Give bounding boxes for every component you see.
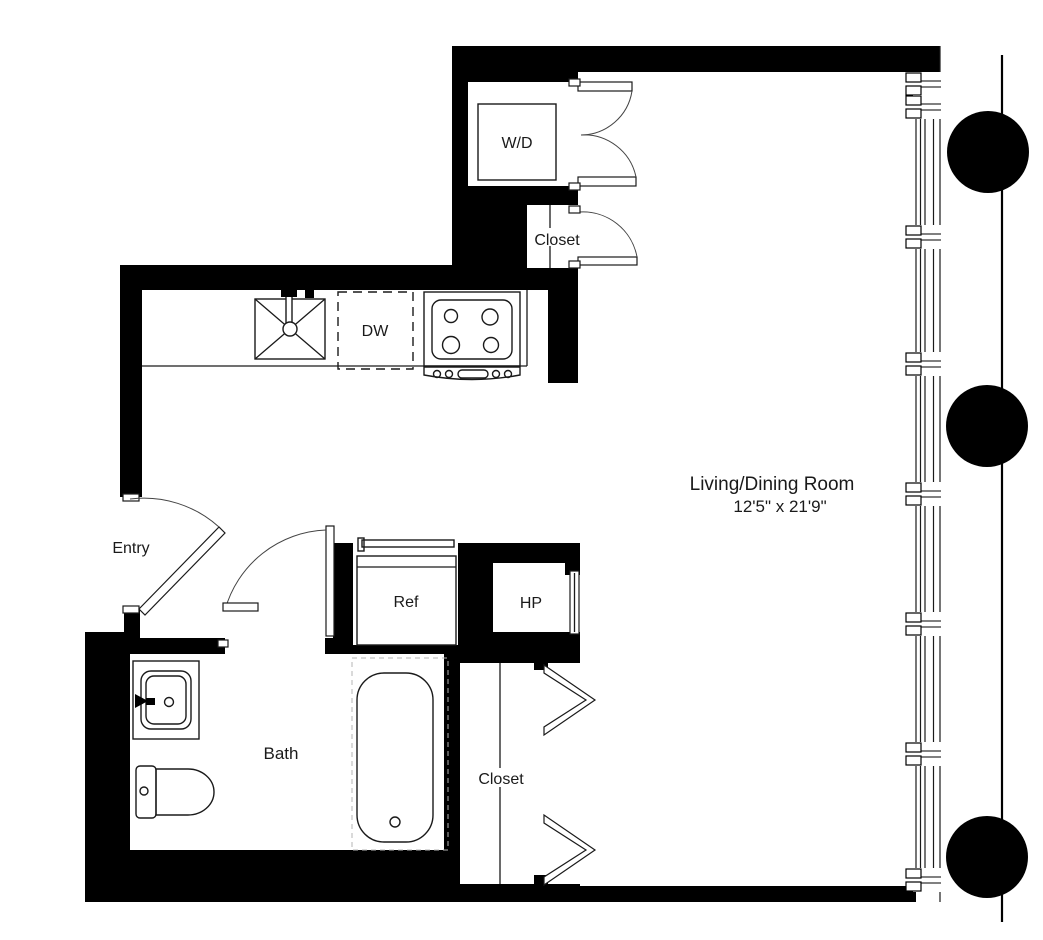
burner bbox=[445, 310, 458, 323]
soap-dispenser bbox=[305, 289, 314, 298]
column-grid bbox=[946, 55, 1029, 922]
kitchen-top-wall bbox=[120, 265, 548, 290]
living-dining-dimensions: 12'5" x 21'9" bbox=[733, 497, 826, 516]
bath-door-jamb bbox=[218, 640, 228, 647]
dishwasher-label: DW bbox=[362, 323, 390, 340]
entry-door-jamb bbox=[123, 494, 139, 501]
window-wall bbox=[906, 46, 942, 902]
faucet-handle bbox=[281, 289, 297, 297]
kitchen-sink bbox=[255, 289, 325, 359]
burner bbox=[482, 309, 498, 325]
stove-display bbox=[458, 370, 488, 378]
column-top bbox=[947, 111, 1029, 193]
window-mullion-joints bbox=[906, 72, 942, 892]
bathroom-door bbox=[218, 526, 334, 647]
kitchen-right-wall bbox=[548, 265, 578, 383]
stove-knob bbox=[493, 371, 500, 378]
bath-top-wall bbox=[85, 638, 225, 654]
refrigerator-label: Ref bbox=[394, 594, 419, 611]
burner bbox=[484, 338, 499, 353]
burner bbox=[443, 337, 460, 354]
floor-plan: DW bbox=[0, 0, 1043, 940]
lower-closet-label: Closet bbox=[478, 771, 524, 788]
floor-plan-drawing: DW bbox=[0, 0, 1043, 940]
hp-right-wall-top bbox=[565, 543, 580, 575]
wd-closet-interior bbox=[468, 82, 578, 186]
living-dining-label: Living/Dining Room bbox=[690, 474, 855, 495]
bath-door-threshold bbox=[223, 603, 258, 611]
wd-double-door bbox=[569, 79, 636, 190]
bottom-wall-right bbox=[545, 886, 916, 902]
heat-pump-label: HP bbox=[520, 595, 542, 612]
bifold-top bbox=[544, 665, 595, 735]
bath-label: Bath bbox=[264, 744, 299, 763]
bottom-wall-left bbox=[85, 850, 460, 902]
kitchen-left-wall bbox=[120, 265, 142, 497]
vanity-faucet-spout bbox=[146, 698, 155, 705]
column-middle bbox=[946, 385, 1028, 467]
kitchen: DW bbox=[142, 289, 527, 380]
upper-closet-label: Closet bbox=[534, 232, 580, 249]
dishwasher: DW bbox=[338, 292, 413, 369]
entry-label: Entry bbox=[112, 540, 149, 557]
bath-door-leaf bbox=[326, 526, 334, 636]
washer-dryer-label: W/D bbox=[501, 135, 532, 152]
column-bottom bbox=[946, 816, 1028, 898]
stove-knob bbox=[446, 371, 453, 378]
entry-door-jamb bbox=[123, 606, 139, 613]
entry-door-leaf bbox=[139, 527, 225, 615]
stove bbox=[424, 292, 520, 380]
bifold-bottom bbox=[544, 815, 595, 885]
